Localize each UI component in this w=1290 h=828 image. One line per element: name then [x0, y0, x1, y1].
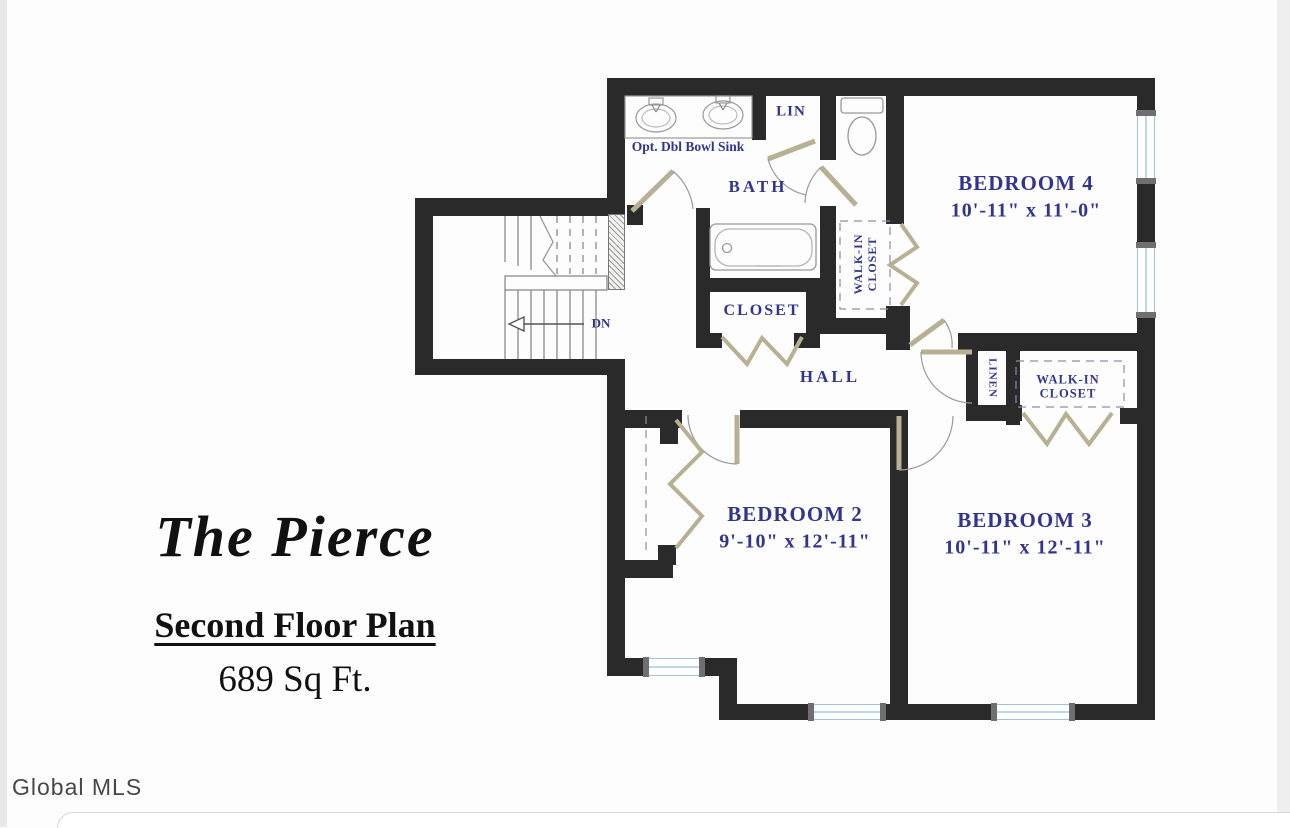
- bedroom4-door-leaf: [910, 320, 944, 345]
- room-dims-bedroom4: 10'-11" x 11'-0": [951, 200, 1101, 223]
- down-arrow: [509, 317, 584, 331]
- vanity-sinks: [625, 96, 752, 138]
- walkin4-bifold: [890, 224, 917, 305]
- room-label-bedroom2: BEDROOM 2: [727, 502, 863, 526]
- title-block: The Pierce Second Floor Plan 689 Sq Ft.: [95, 503, 495, 701]
- hall-closet-bifold: [722, 337, 802, 364]
- room-label-hall: HALL: [800, 367, 860, 387]
- room-label-bedroom3: BEDROOM 3: [957, 508, 1093, 532]
- toilet: [841, 98, 883, 155]
- room-label-walkin-closet-bed3: WALK-IN CLOSET: [1036, 373, 1099, 402]
- stair-direction-label: DN: [592, 317, 611, 332]
- floor-plan-canvas: BEDROOM 4 10'-11" x 11'-0" BEDROOM 2 9'-…: [0, 0, 1290, 827]
- walkin4-line1: WALK-IN: [851, 233, 865, 294]
- watermark: Global MLS: [12, 774, 142, 801]
- room-dims-bedroom2: 9'-10" x 12'-11": [719, 531, 871, 554]
- door-arcs: [673, 159, 972, 470]
- room-dims-bedroom3: 10'-11" x 12'-11": [944, 537, 1105, 560]
- plan-drawing-layer: [0, 0, 1290, 827]
- room-label-bedroom4: BEDROOM 4: [958, 171, 1094, 195]
- card-top-edge: [57, 812, 1290, 828]
- sink-note: Opt. Dbl Bowl Sink: [632, 139, 745, 155]
- lin-door-leaf: [768, 141, 815, 159]
- walkin3-bifold: [1023, 413, 1112, 444]
- plan-subtitle: Second Floor Plan: [95, 604, 495, 646]
- walkin3-line2: CLOSET: [1040, 387, 1097, 401]
- plan-name: The Pierce: [95, 503, 495, 570]
- walkin3-line1: WALK-IN: [1036, 373, 1099, 387]
- room-label-lin: LIN: [776, 103, 806, 120]
- bath-door-leaf: [632, 171, 673, 211]
- door-leaves: [632, 141, 972, 470]
- bathtub: [710, 224, 816, 270]
- walkin4-line2: CLOSET: [865, 237, 879, 292]
- room-label-closet: CLOSET: [724, 302, 801, 320]
- plan-area: 689 Sq Ft.: [95, 658, 495, 701]
- bedroom2-closet-bifold: [670, 420, 702, 548]
- wc-door-leaf: [821, 167, 856, 205]
- room-label-bath: BATH: [729, 177, 788, 197]
- stairs: [505, 216, 607, 359]
- room-label-walkin-closet-bed4: WALK-IN CLOSET: [852, 233, 880, 294]
- room-label-linen: LINEN: [986, 358, 999, 398]
